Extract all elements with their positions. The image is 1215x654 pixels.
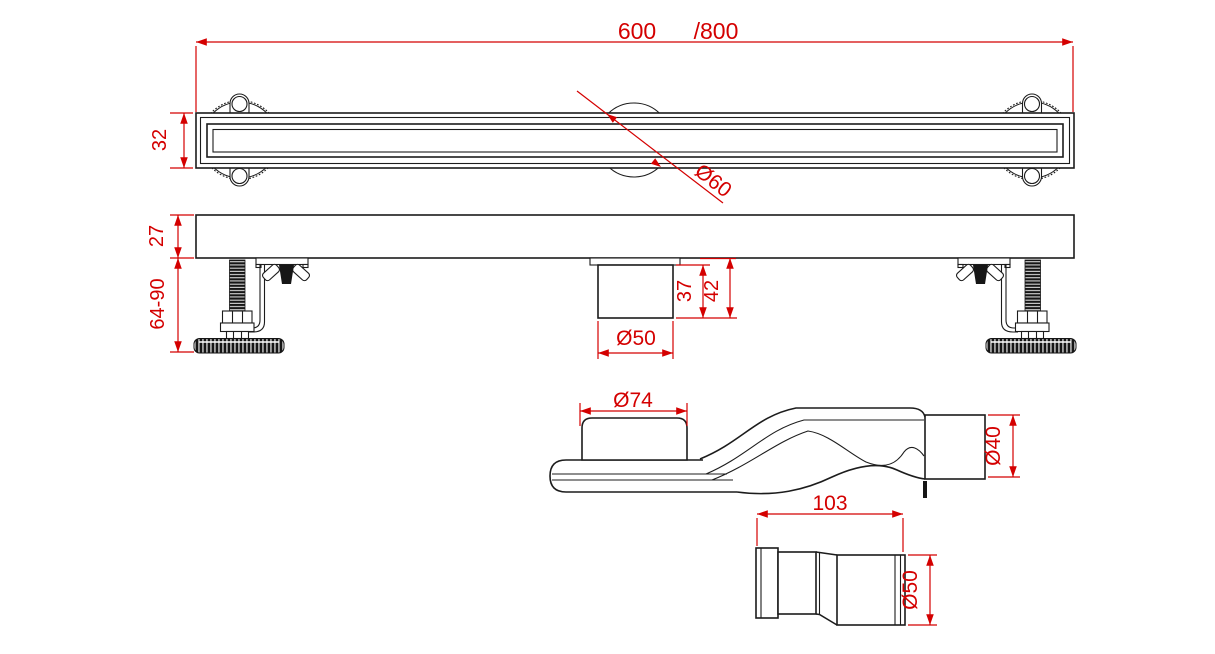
trap-inlet-cap xyxy=(582,418,687,460)
adjustable-foot-right xyxy=(955,258,1076,353)
foot-base-left xyxy=(194,339,284,354)
dimension-42: 42 xyxy=(700,258,736,318)
technical-drawing-page: 600 /800 32 Ø60 xyxy=(0,0,1215,654)
channel-top-view xyxy=(196,113,1074,168)
dim-label-42: 42 xyxy=(701,280,723,302)
foot-base-right xyxy=(986,339,1076,354)
top-view: 600 /800 32 Ø60 xyxy=(149,18,1074,203)
dim-label-dia74: Ø74 xyxy=(613,389,653,412)
dimension-dia40: Ø40 xyxy=(982,415,1020,477)
adapter-view: 103 Ø50 xyxy=(756,492,937,625)
trap-outlet-pipe xyxy=(925,415,985,479)
adjustable-foot-left xyxy=(194,258,311,353)
dimension-dia50-spigot: Ø50 xyxy=(598,321,673,359)
nuts-left xyxy=(221,311,255,339)
dim-label-dia50-spigot: Ø50 xyxy=(616,327,656,350)
threaded-rod-left xyxy=(230,260,246,312)
dimension-27: 27 xyxy=(146,215,194,258)
threaded-rod-right xyxy=(1025,260,1041,312)
side-view: 27 64-90 37 42 Ø50 xyxy=(146,215,1076,359)
dim-label-dia50-adapter: Ø50 xyxy=(899,570,922,610)
dimension-64-90: 64-90 xyxy=(147,258,194,352)
dimension-width-32: 32 xyxy=(149,113,193,168)
dim-label-37: 37 xyxy=(674,280,696,302)
trap-s-bend xyxy=(700,408,925,498)
dimension-length: 600 /800 xyxy=(196,18,1073,112)
dim-label-27: 27 xyxy=(146,225,168,247)
channel-side-view xyxy=(196,215,1074,258)
dim-label-length-alt: /800 xyxy=(694,18,739,44)
nuts-right xyxy=(1016,311,1050,339)
dim-label-64-90: 64-90 xyxy=(147,278,169,329)
dim-label-length: 600 xyxy=(618,18,656,44)
trap-view: Ø74 Ø40 xyxy=(550,389,1020,498)
dim-label-dia40: Ø40 xyxy=(982,426,1005,466)
outlet-spigot xyxy=(590,258,680,318)
adapter-body xyxy=(756,548,905,625)
dim-label-103: 103 xyxy=(812,492,847,515)
dimension-103: 103 xyxy=(757,492,903,552)
trap-body xyxy=(550,460,737,492)
shower-drain-technical-drawing: 600 /800 32 Ø60 xyxy=(0,0,1215,654)
dim-label-32: 32 xyxy=(149,129,171,151)
